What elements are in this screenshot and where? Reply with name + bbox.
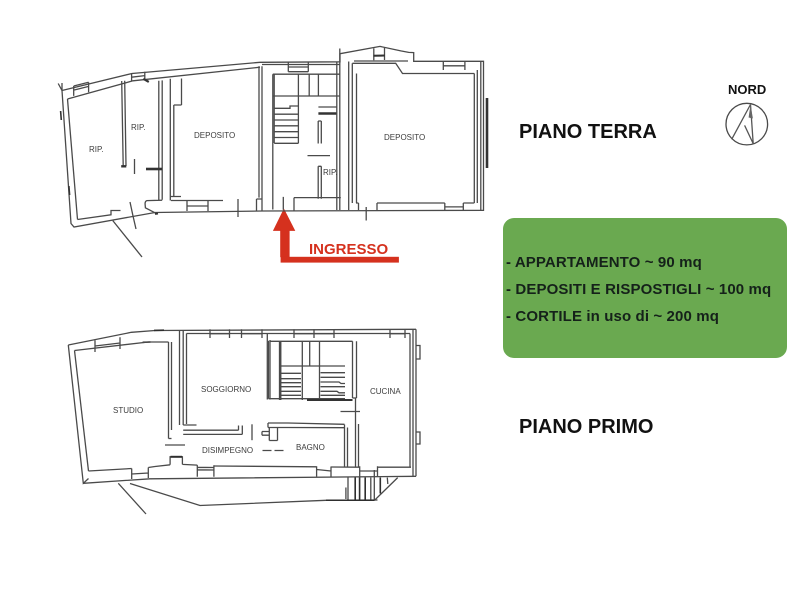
svg-text:DEPOSITO: DEPOSITO [194,131,235,140]
svg-text:BAGNO: BAGNO [296,443,325,452]
svg-text:CUCINA: CUCINA [370,387,401,396]
svg-text:SOGGIORNO: SOGGIORNO [201,385,251,394]
svg-text:RIP.: RIP. [89,145,104,154]
svg-text:RIP.: RIP. [323,168,338,177]
svg-text:STUDIO: STUDIO [113,406,143,415]
svg-text:DISIMPEGNO: DISIMPEGNO [202,446,253,455]
svg-text:DEPOSITO: DEPOSITO [384,133,425,142]
svg-text:RIP.: RIP. [131,123,146,132]
svg-text:INGRESSO: INGRESSO [309,241,389,258]
